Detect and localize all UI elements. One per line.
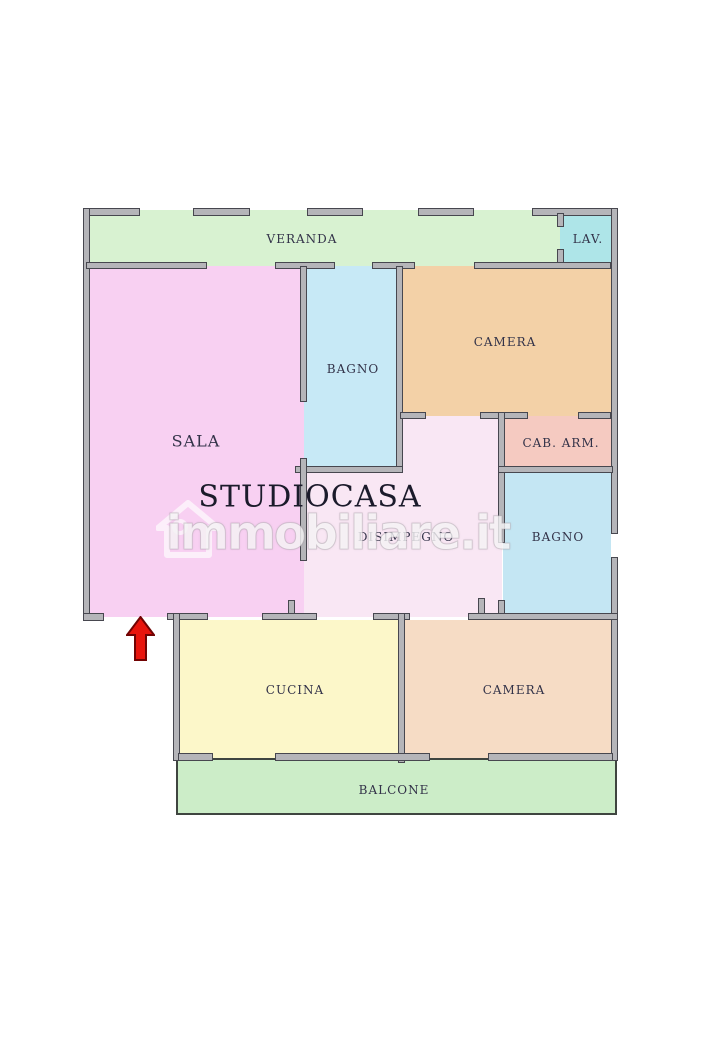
wall-segment xyxy=(532,208,618,216)
wall-segment xyxy=(396,266,403,473)
wall-segment xyxy=(83,208,90,621)
wall-segment xyxy=(295,466,403,473)
wall-segment xyxy=(178,753,213,761)
room-label-balcone: BALCONE xyxy=(359,783,430,797)
wall-segment xyxy=(557,213,564,227)
wall-segment xyxy=(173,613,180,761)
agency-name-text: STUDIOCASA xyxy=(198,480,421,515)
wall-segment xyxy=(262,613,317,620)
room-label-bagno-2: BAGNO xyxy=(532,530,584,544)
wall-segment xyxy=(83,613,104,621)
wall-segment xyxy=(557,249,564,263)
floorplan-canvas: STUDIOCASA immobiliare.it VERANDALAV.SAL… xyxy=(0,0,717,1050)
wall-segment xyxy=(578,412,611,419)
wall-segment xyxy=(474,262,611,269)
wall-segment xyxy=(498,466,613,473)
wall-segment xyxy=(498,412,505,543)
wall-segment xyxy=(418,208,474,216)
room-label-lav: LAV. xyxy=(573,232,603,246)
wall-segment xyxy=(275,753,430,761)
wall-segment xyxy=(83,208,140,216)
room-label-camera-2: CAMERA xyxy=(483,683,546,697)
room-label-disimpegno: DISIMPEGNO xyxy=(358,530,454,544)
room-label-camera-1: CAMERA xyxy=(474,335,537,349)
wall-segment xyxy=(488,753,613,761)
room-label-bagno-1: BAGNO xyxy=(327,362,379,376)
wall-segment xyxy=(288,600,295,614)
wall-segment xyxy=(478,598,485,614)
wall-segment xyxy=(611,557,618,761)
room-bagno-2 xyxy=(503,473,611,617)
wall-segment xyxy=(468,613,618,620)
wall-segment xyxy=(611,208,618,534)
room-label-veranda: VERANDA xyxy=(267,232,338,246)
wall-segment xyxy=(300,266,307,402)
wall-segment xyxy=(86,262,207,269)
room-label-cab-arm: CAB. ARM. xyxy=(522,436,599,450)
wall-segment xyxy=(400,412,426,419)
room-label-cucina: CUCINA xyxy=(266,683,324,697)
wall-segment xyxy=(193,208,250,216)
wall-segment xyxy=(307,208,363,216)
entrance-arrow-icon xyxy=(126,616,155,661)
wall-segment xyxy=(398,613,405,763)
room-label-sala: SALA xyxy=(172,432,221,451)
room-veranda xyxy=(86,210,613,266)
wall-segment xyxy=(372,262,415,269)
